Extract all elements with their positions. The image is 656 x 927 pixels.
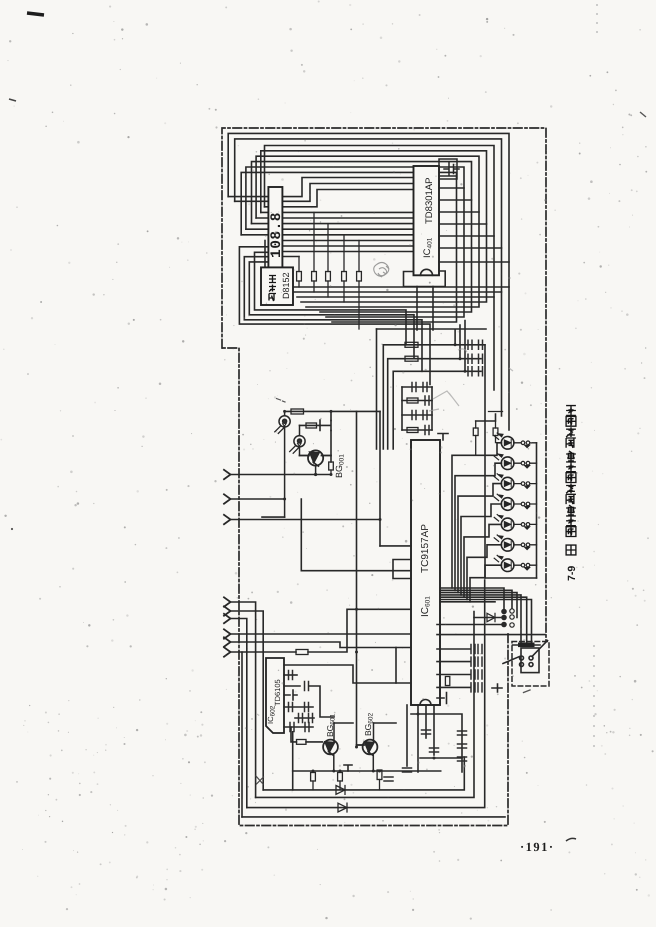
svg-text:BG602: BG602 (363, 712, 375, 736)
svg-text:7-9: 7-9 (566, 566, 578, 581)
svg-text:·191·: ·191· (520, 840, 555, 854)
svg-text:D8152: D8152 (281, 272, 291, 299)
svg-text:TD6105: TD6105 (273, 679, 282, 706)
svg-text:TC9157AP: TC9157AP (420, 524, 431, 573)
svg-text:TD8301AP: TD8301AP (424, 178, 435, 224)
svg-text:BG001: BG001 (334, 454, 346, 478)
svg-text:108.8: 108.8 (269, 212, 285, 258)
